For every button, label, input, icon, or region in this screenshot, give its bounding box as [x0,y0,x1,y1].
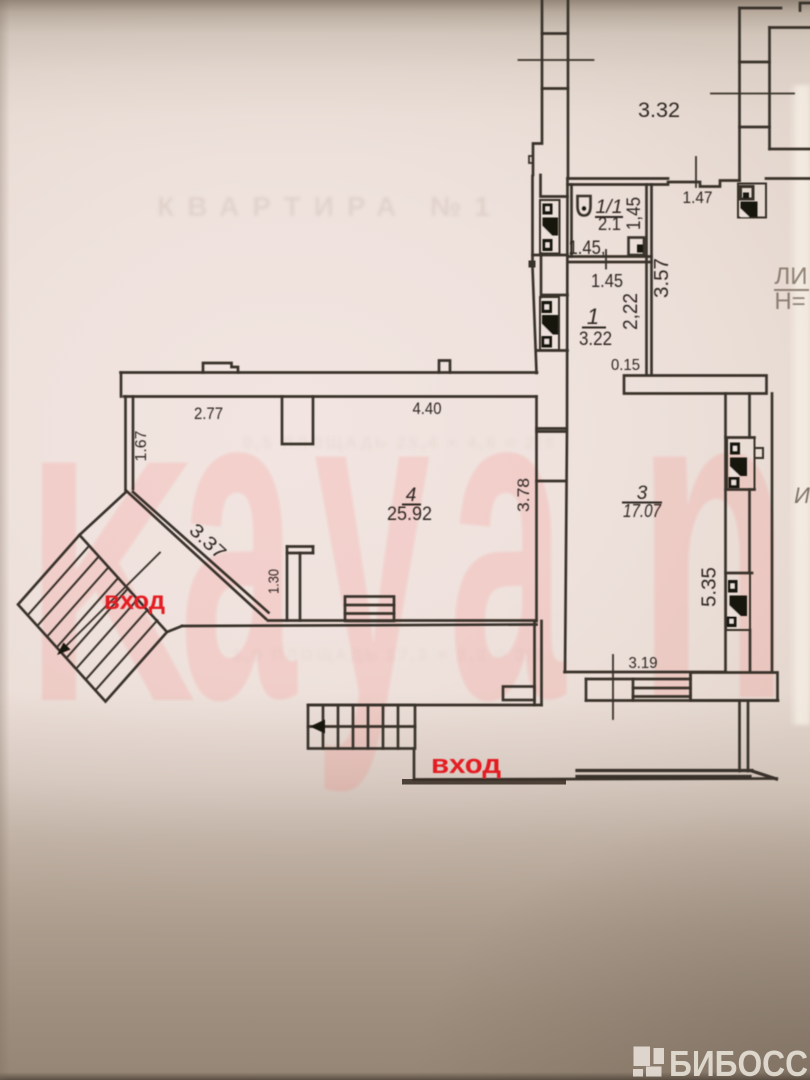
svg-text:2,22: 2,22 [620,293,642,330]
svg-text:2.77: 2.77 [194,404,223,423]
svg-text:3.57: 3.57 [651,258,673,298]
svg-text:1.30: 1.30 [266,569,283,594]
svg-text:Н=: Н= [774,288,805,315]
svg-text:3.32: 3.32 [638,99,680,122]
svg-text:4.40: 4.40 [413,399,442,418]
svg-text:17.07: 17.07 [623,501,662,521]
svg-text:2.1: 2.1 [598,214,621,234]
svg-text:1.67: 1.67 [133,430,150,461]
svg-text:1.47: 1.47 [683,188,713,207]
svg-text:1: 1 [587,304,599,329]
svg-text:БИБОСС: БИБОСС [669,1043,808,1080]
svg-text:ЛИ: ЛИ [775,263,808,290]
svg-text:3.78: 3.78 [514,478,533,512]
svg-text:КВАРТИРА №1: КВАРТИРА №1 [157,191,503,222]
svg-text:вход: вход [431,749,501,779]
svg-text:K: K [26,388,195,774]
svg-text:3.19: 3.19 [629,655,658,672]
svg-text:3.22: 3.22 [579,329,612,350]
svg-text:И: И [794,483,810,508]
svg-text:вход: вход [104,587,165,615]
svg-text:0.15: 0.15 [611,357,640,374]
svg-text:n: n [637,286,790,794]
svg-text:1,45: 1,45 [624,197,645,230]
svg-text:25.92: 25.92 [387,504,432,525]
svg-text:1.45,: 1.45, [569,238,606,259]
svg-text:1,0 ПЛОЩАДЬ 17,3 × 2,2 = 3/1: 1,0 ПЛОЩАДЬ 17,3 × 2,2 = 3/1 [233,647,547,664]
svg-text:a: a [449,286,567,795]
svg-text:5.35: 5.35 [699,567,721,607]
svg-text:4: 4 [406,485,417,506]
svg-text:1.45: 1.45 [591,271,623,291]
